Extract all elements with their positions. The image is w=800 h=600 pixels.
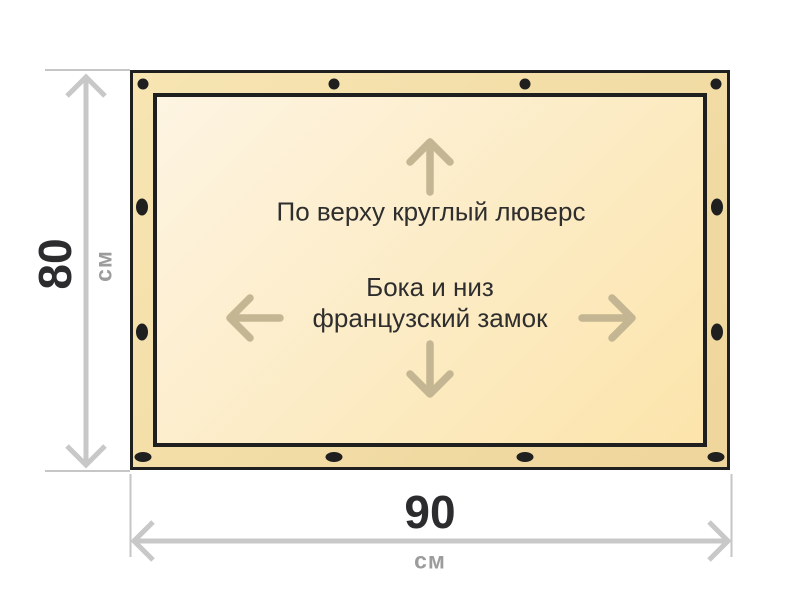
right-arrow-icon: [576, 292, 636, 344]
sides-bottom-note: Бока и низ французский замок: [313, 272, 548, 334]
grommet-icon: [517, 452, 534, 462]
banner-outline: [130, 70, 730, 470]
left-arrow-icon: [226, 292, 286, 344]
grommet-icon: [520, 79, 531, 90]
down-arrow-icon: [404, 340, 456, 400]
top-edge-note: По верху круглый люверс: [277, 197, 586, 228]
up-arrow-icon: [404, 136, 456, 196]
grommet-icon: [708, 452, 725, 462]
grommet-icon: [711, 199, 723, 216]
height-value: 80: [28, 238, 82, 289]
height-unit: см: [91, 250, 118, 282]
sides-bottom-note-line1: Бока и низ: [313, 272, 548, 303]
diagram-canvas: По верху круглый люверс Бока и низ франц…: [0, 0, 800, 600]
width-unit: см: [414, 548, 446, 575]
width-value: 90: [404, 485, 455, 539]
grommet-icon: [711, 79, 722, 90]
grommet-icon: [326, 452, 343, 462]
grommet-icon: [711, 324, 723, 341]
grommet-icon: [329, 79, 340, 90]
sides-bottom-note-line2: французский замок: [313, 303, 548, 334]
